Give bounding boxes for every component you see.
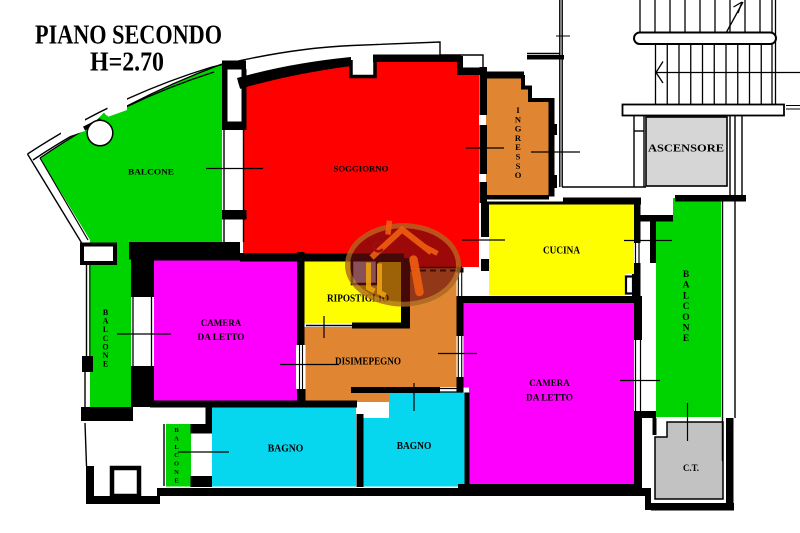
svg-text:CUCINA: CUCINA (543, 246, 581, 257)
svg-text:CAMERA: CAMERA (201, 319, 242, 329)
svg-text:BALCONE: BALCONE (682, 270, 690, 344)
svg-text:C.T.: C.T. (683, 463, 699, 473)
svg-text:ASCENSORE: ASCENSORE (648, 144, 724, 155)
svg-text:BALCONE: BALCONE (174, 427, 179, 484)
svg-text:BALCONE: BALCONE (102, 308, 108, 369)
svg-text:BAGNO: BAGNO (397, 441, 432, 452)
svg-text:H=2.70: H=2.70 (90, 47, 164, 77)
svg-text:SOGGIORNO: SOGGIORNO (334, 164, 389, 174)
svg-text:BAGNO: BAGNO (268, 444, 304, 455)
svg-text:DA LETTO: DA LETTO (198, 333, 245, 343)
svg-text:CAMERA: CAMERA (529, 379, 570, 389)
svg-text:DA LETTO: DA LETTO (526, 394, 573, 404)
svg-text:BALCONE: BALCONE (128, 167, 174, 177)
svg-text:DISIMEPEGNO: DISIMEPEGNO (335, 357, 401, 368)
svg-text:PIANO SECONDO: PIANO SECONDO (35, 20, 222, 50)
